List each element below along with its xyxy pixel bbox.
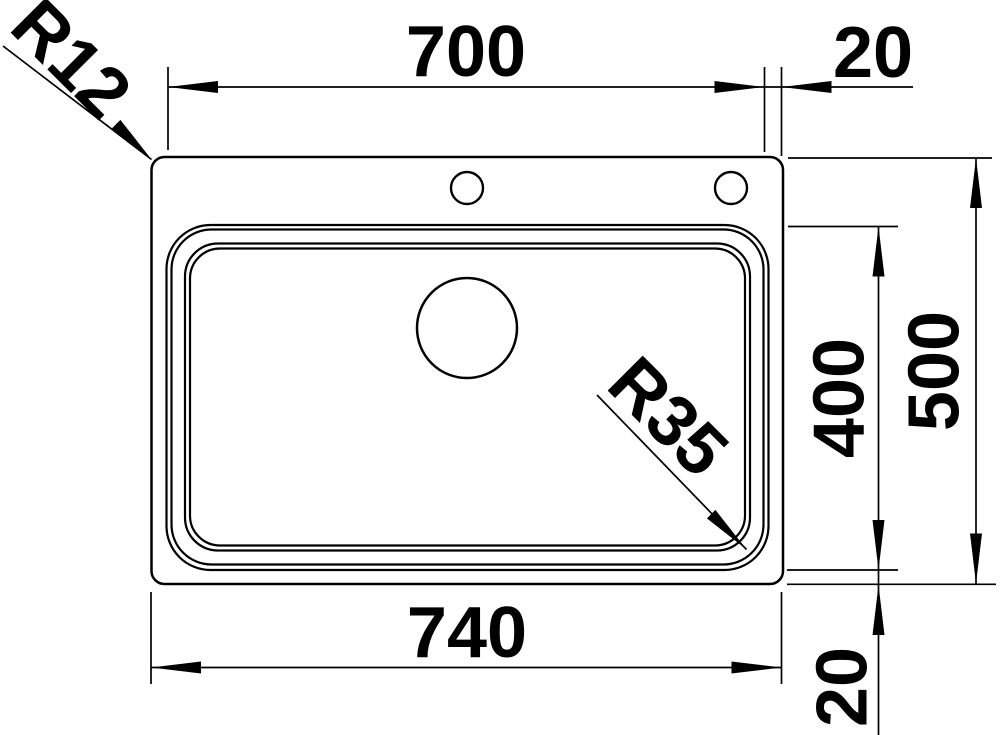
dim-700-label: 700 xyxy=(406,12,526,92)
dimension-right-400-500-20: 400 500 20 xyxy=(787,158,996,735)
arrowhead-700-left xyxy=(168,81,218,93)
arrowhead-500-bottom xyxy=(970,534,982,584)
dimension-top-700-20: 700 20 xyxy=(168,12,913,156)
sink-body xyxy=(152,157,784,584)
radius-r35-label: R35 xyxy=(593,342,743,492)
drain-hole xyxy=(417,278,517,378)
leader-r12: R12 xyxy=(0,0,151,160)
radius-r12-label: R12 xyxy=(0,0,146,134)
faucet-hole-center xyxy=(451,172,483,204)
sink-outer-outline xyxy=(152,157,784,584)
dim-740-label: 740 xyxy=(407,593,527,673)
dim-500-label: 500 xyxy=(895,311,975,431)
faucet-hole-right xyxy=(715,172,747,204)
arrowhead-400-top xyxy=(873,227,885,277)
dim-20-top-label: 20 xyxy=(833,13,913,93)
arrowhead-500-top xyxy=(970,158,982,208)
leader-r35: R35 xyxy=(593,342,747,549)
arrowhead-740-left xyxy=(151,662,201,674)
dim-400-label: 400 xyxy=(800,338,880,458)
arrowhead-r12 xyxy=(112,120,152,160)
dim-20-bottom-label: 20 xyxy=(803,647,883,727)
arrowhead-740-right xyxy=(732,662,782,674)
technical-drawing-page: 700 20 R12 400 500 20 xyxy=(0,0,1000,735)
arrowhead-400-bottom xyxy=(873,520,885,570)
arrowhead-20-bottom xyxy=(873,585,885,635)
arrowhead-700-right xyxy=(715,81,765,93)
sink-dimension-drawing: 700 20 R12 400 500 20 xyxy=(0,0,1000,735)
arrowhead-20-top xyxy=(782,81,832,93)
dimension-bottom-740: 740 xyxy=(151,592,782,684)
